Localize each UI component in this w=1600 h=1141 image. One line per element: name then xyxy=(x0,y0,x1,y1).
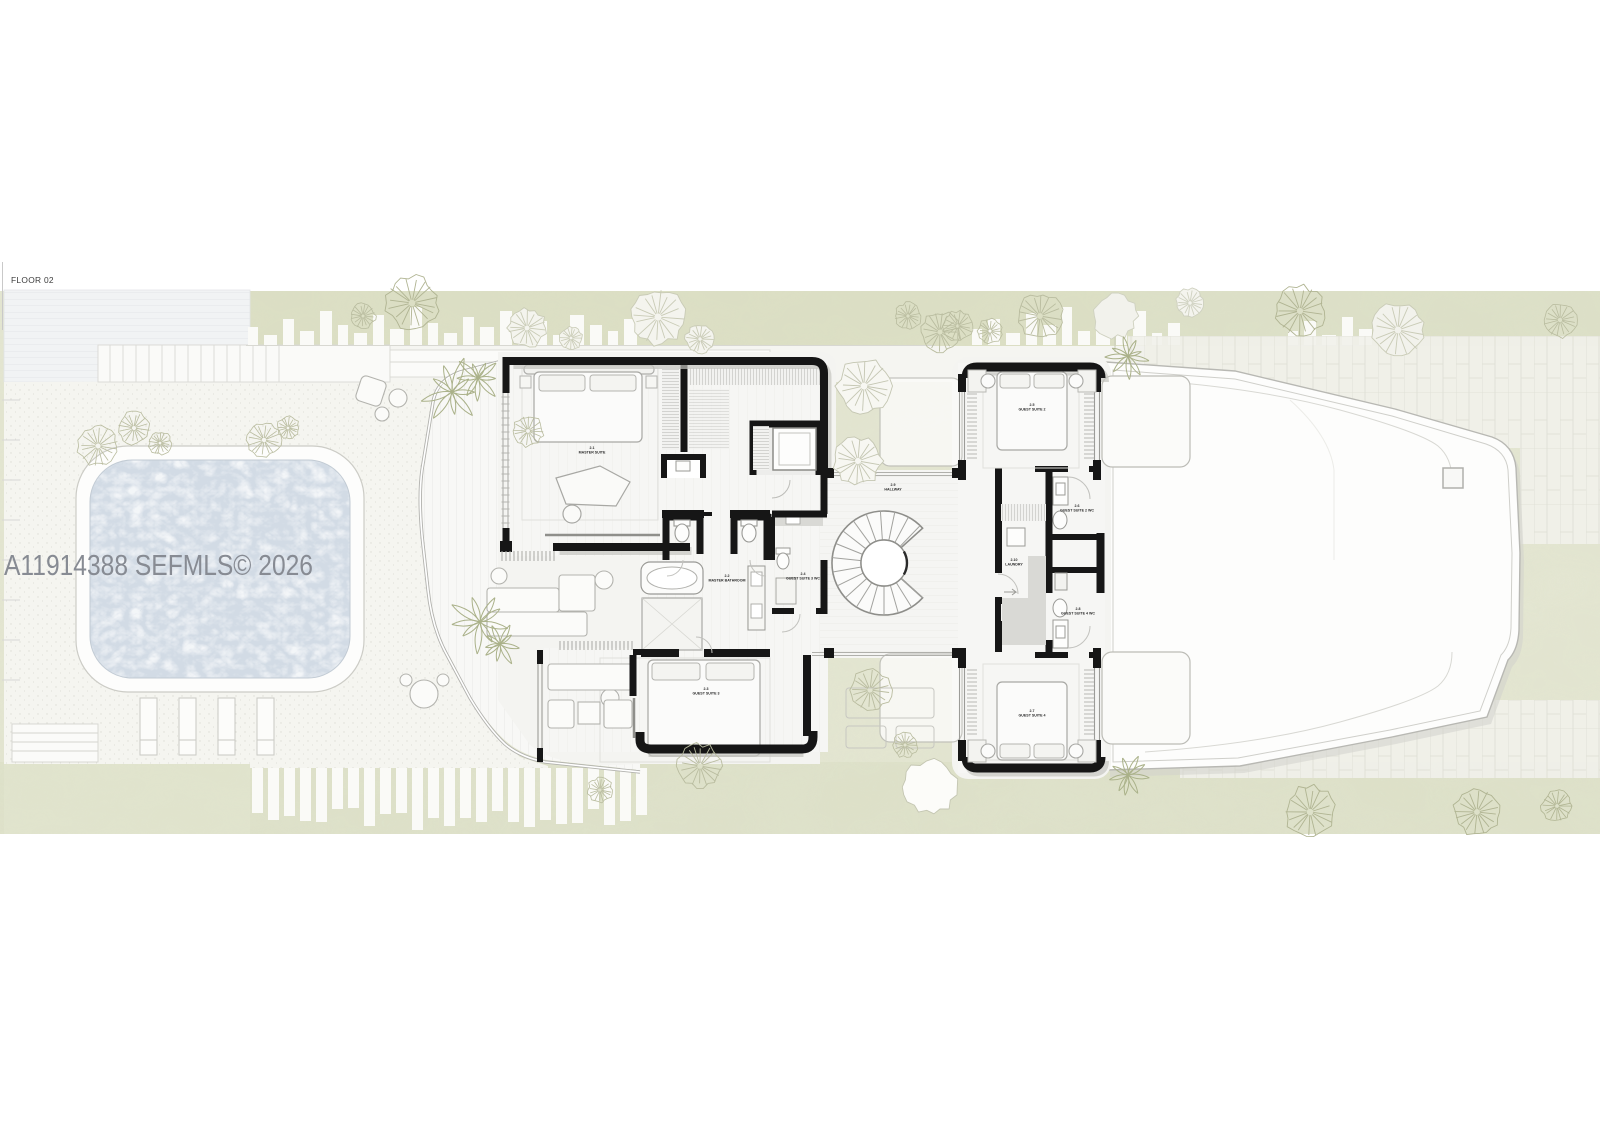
svg-text:GUEST SUITE 2 WC: GUEST SUITE 2 WC xyxy=(1060,509,1094,513)
svg-text:2.7: 2.7 xyxy=(1030,709,1035,713)
svg-text:GUEST SUITE 4: GUEST SUITE 4 xyxy=(1019,714,1046,718)
svg-text:2.6: 2.6 xyxy=(1075,504,1080,508)
svg-text:2.9: 2.9 xyxy=(891,483,896,487)
svg-text:2.1: 2.1 xyxy=(590,446,595,450)
svg-text:2.5: 2.5 xyxy=(1030,403,1035,407)
svg-text:2.3: 2.3 xyxy=(704,687,709,691)
svg-text:GUEST SUITE 3 WC: GUEST SUITE 3 WC xyxy=(786,577,820,581)
svg-text:2.10: 2.10 xyxy=(1011,558,1018,562)
svg-text:2.8: 2.8 xyxy=(1076,607,1081,611)
svg-text:GUEST SUITE 2: GUEST SUITE 2 xyxy=(1019,408,1046,412)
svg-text:FLOOR 02: FLOOR 02 xyxy=(11,275,54,285)
svg-text:2.2: 2.2 xyxy=(725,574,730,578)
svg-text:GUEST SUITE 4 WC: GUEST SUITE 4 WC xyxy=(1061,612,1095,616)
svg-text:MASTER BATHROOM: MASTER BATHROOM xyxy=(708,579,745,583)
svg-text:HALLWAY: HALLWAY xyxy=(884,488,902,492)
svg-text:2.4: 2.4 xyxy=(801,572,806,576)
svg-text:MASTER SUITE: MASTER SUITE xyxy=(579,451,606,455)
svg-text:LAUNDRY: LAUNDRY xyxy=(1005,563,1023,567)
svg-text:A11914388 SEFMLS© 2026: A11914388 SEFMLS© 2026 xyxy=(4,550,313,582)
svg-text:GUEST SUITE 3: GUEST SUITE 3 xyxy=(693,692,720,696)
